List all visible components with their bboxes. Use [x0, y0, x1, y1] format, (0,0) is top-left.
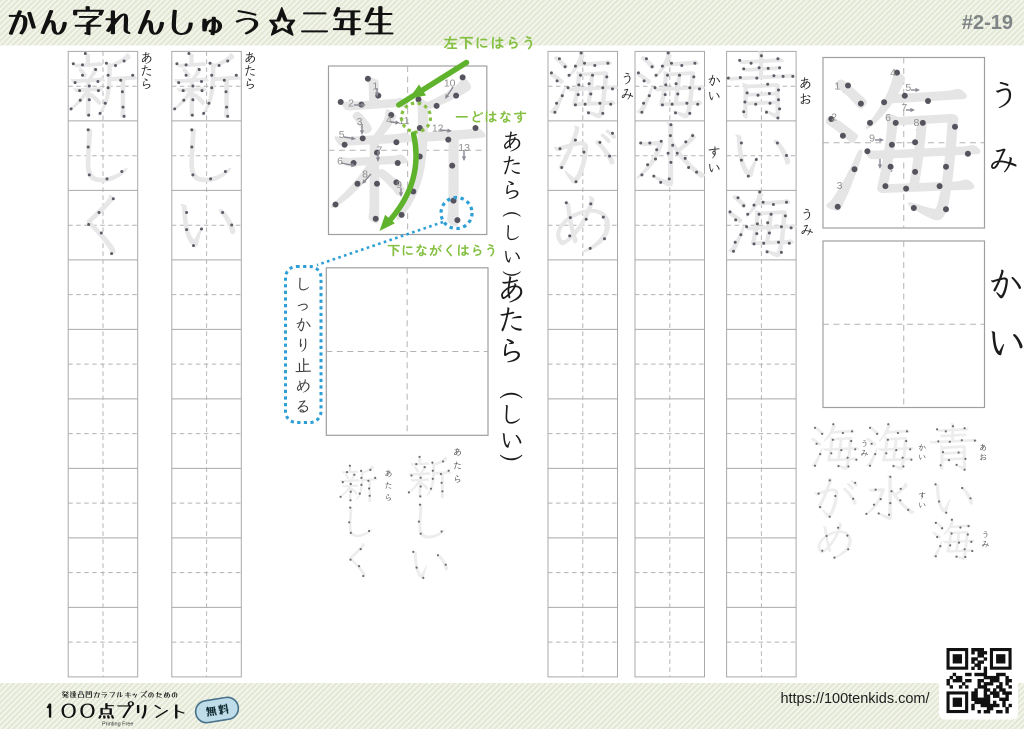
svg-text:6: 6 — [337, 156, 343, 168]
svg-text:8: 8 — [913, 117, 919, 129]
svg-text:1: 1 — [834, 80, 840, 92]
svg-text:6: 6 — [885, 112, 891, 124]
svg-text:10: 10 — [444, 77, 456, 89]
svg-text:#2-19: #2-19 — [962, 12, 1013, 34]
svg-text:2: 2 — [831, 112, 837, 124]
svg-text:5: 5 — [339, 129, 345, 141]
svg-text:7: 7 — [901, 102, 907, 114]
svg-text:https://100tenkids.com/: https://100tenkids.com/ — [780, 691, 930, 707]
svg-text:12: 12 — [432, 123, 444, 135]
svg-text:Printing Free: Printing Free — [102, 722, 134, 728]
svg-text:2: 2 — [348, 98, 354, 110]
svg-text:4: 4 — [386, 114, 392, 126]
svg-text:3: 3 — [837, 180, 843, 192]
svg-text:5: 5 — [905, 82, 911, 94]
svg-text:4: 4 — [890, 67, 896, 79]
svg-text:9: 9 — [869, 132, 875, 144]
